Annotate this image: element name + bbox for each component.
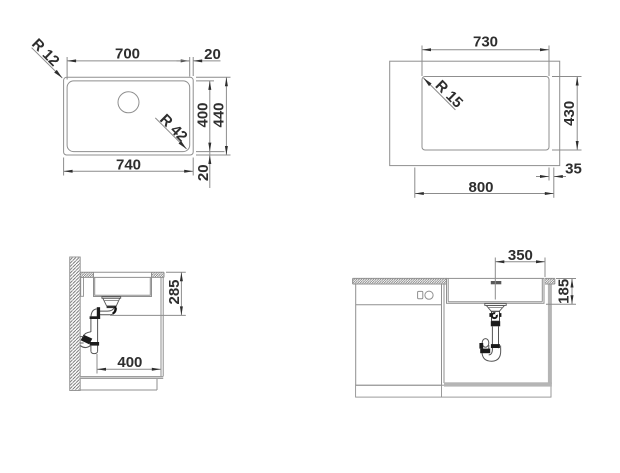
svg-text:35: 35 (565, 161, 582, 178)
svg-text:440: 440 (211, 102, 228, 127)
svg-text:430: 430 (561, 101, 578, 126)
svg-text:185: 185 (555, 279, 572, 304)
svg-text:400: 400 (194, 102, 211, 127)
svg-text:350: 350 (508, 247, 533, 264)
svg-text:400: 400 (117, 354, 142, 371)
svg-text:20: 20 (195, 164, 212, 181)
svg-text:20: 20 (204, 46, 221, 63)
svg-text:285: 285 (166, 279, 183, 304)
svg-text:800: 800 (468, 179, 493, 196)
svg-text:700: 700 (115, 46, 140, 63)
svg-text:730: 730 (473, 33, 498, 50)
svg-text:740: 740 (116, 157, 141, 174)
